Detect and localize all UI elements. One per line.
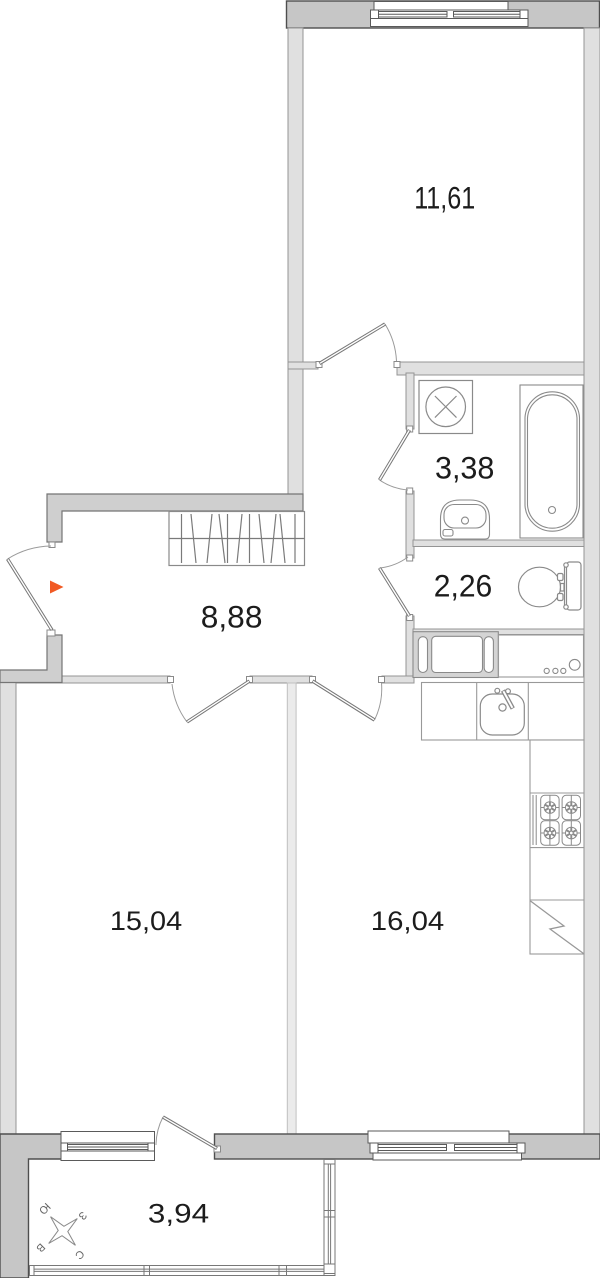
svg-text:15,04: 15,04 (110, 906, 182, 936)
svg-text:8,88: 8,88 (201, 599, 263, 635)
svg-text:2,26: 2,26 (434, 567, 493, 603)
svg-text:16,04: 16,04 (371, 906, 445, 936)
svg-text:11,61: 11,61 (414, 180, 475, 216)
svg-text:3,38: 3,38 (435, 449, 495, 485)
svg-text:3,94: 3,94 (148, 1198, 209, 1228)
